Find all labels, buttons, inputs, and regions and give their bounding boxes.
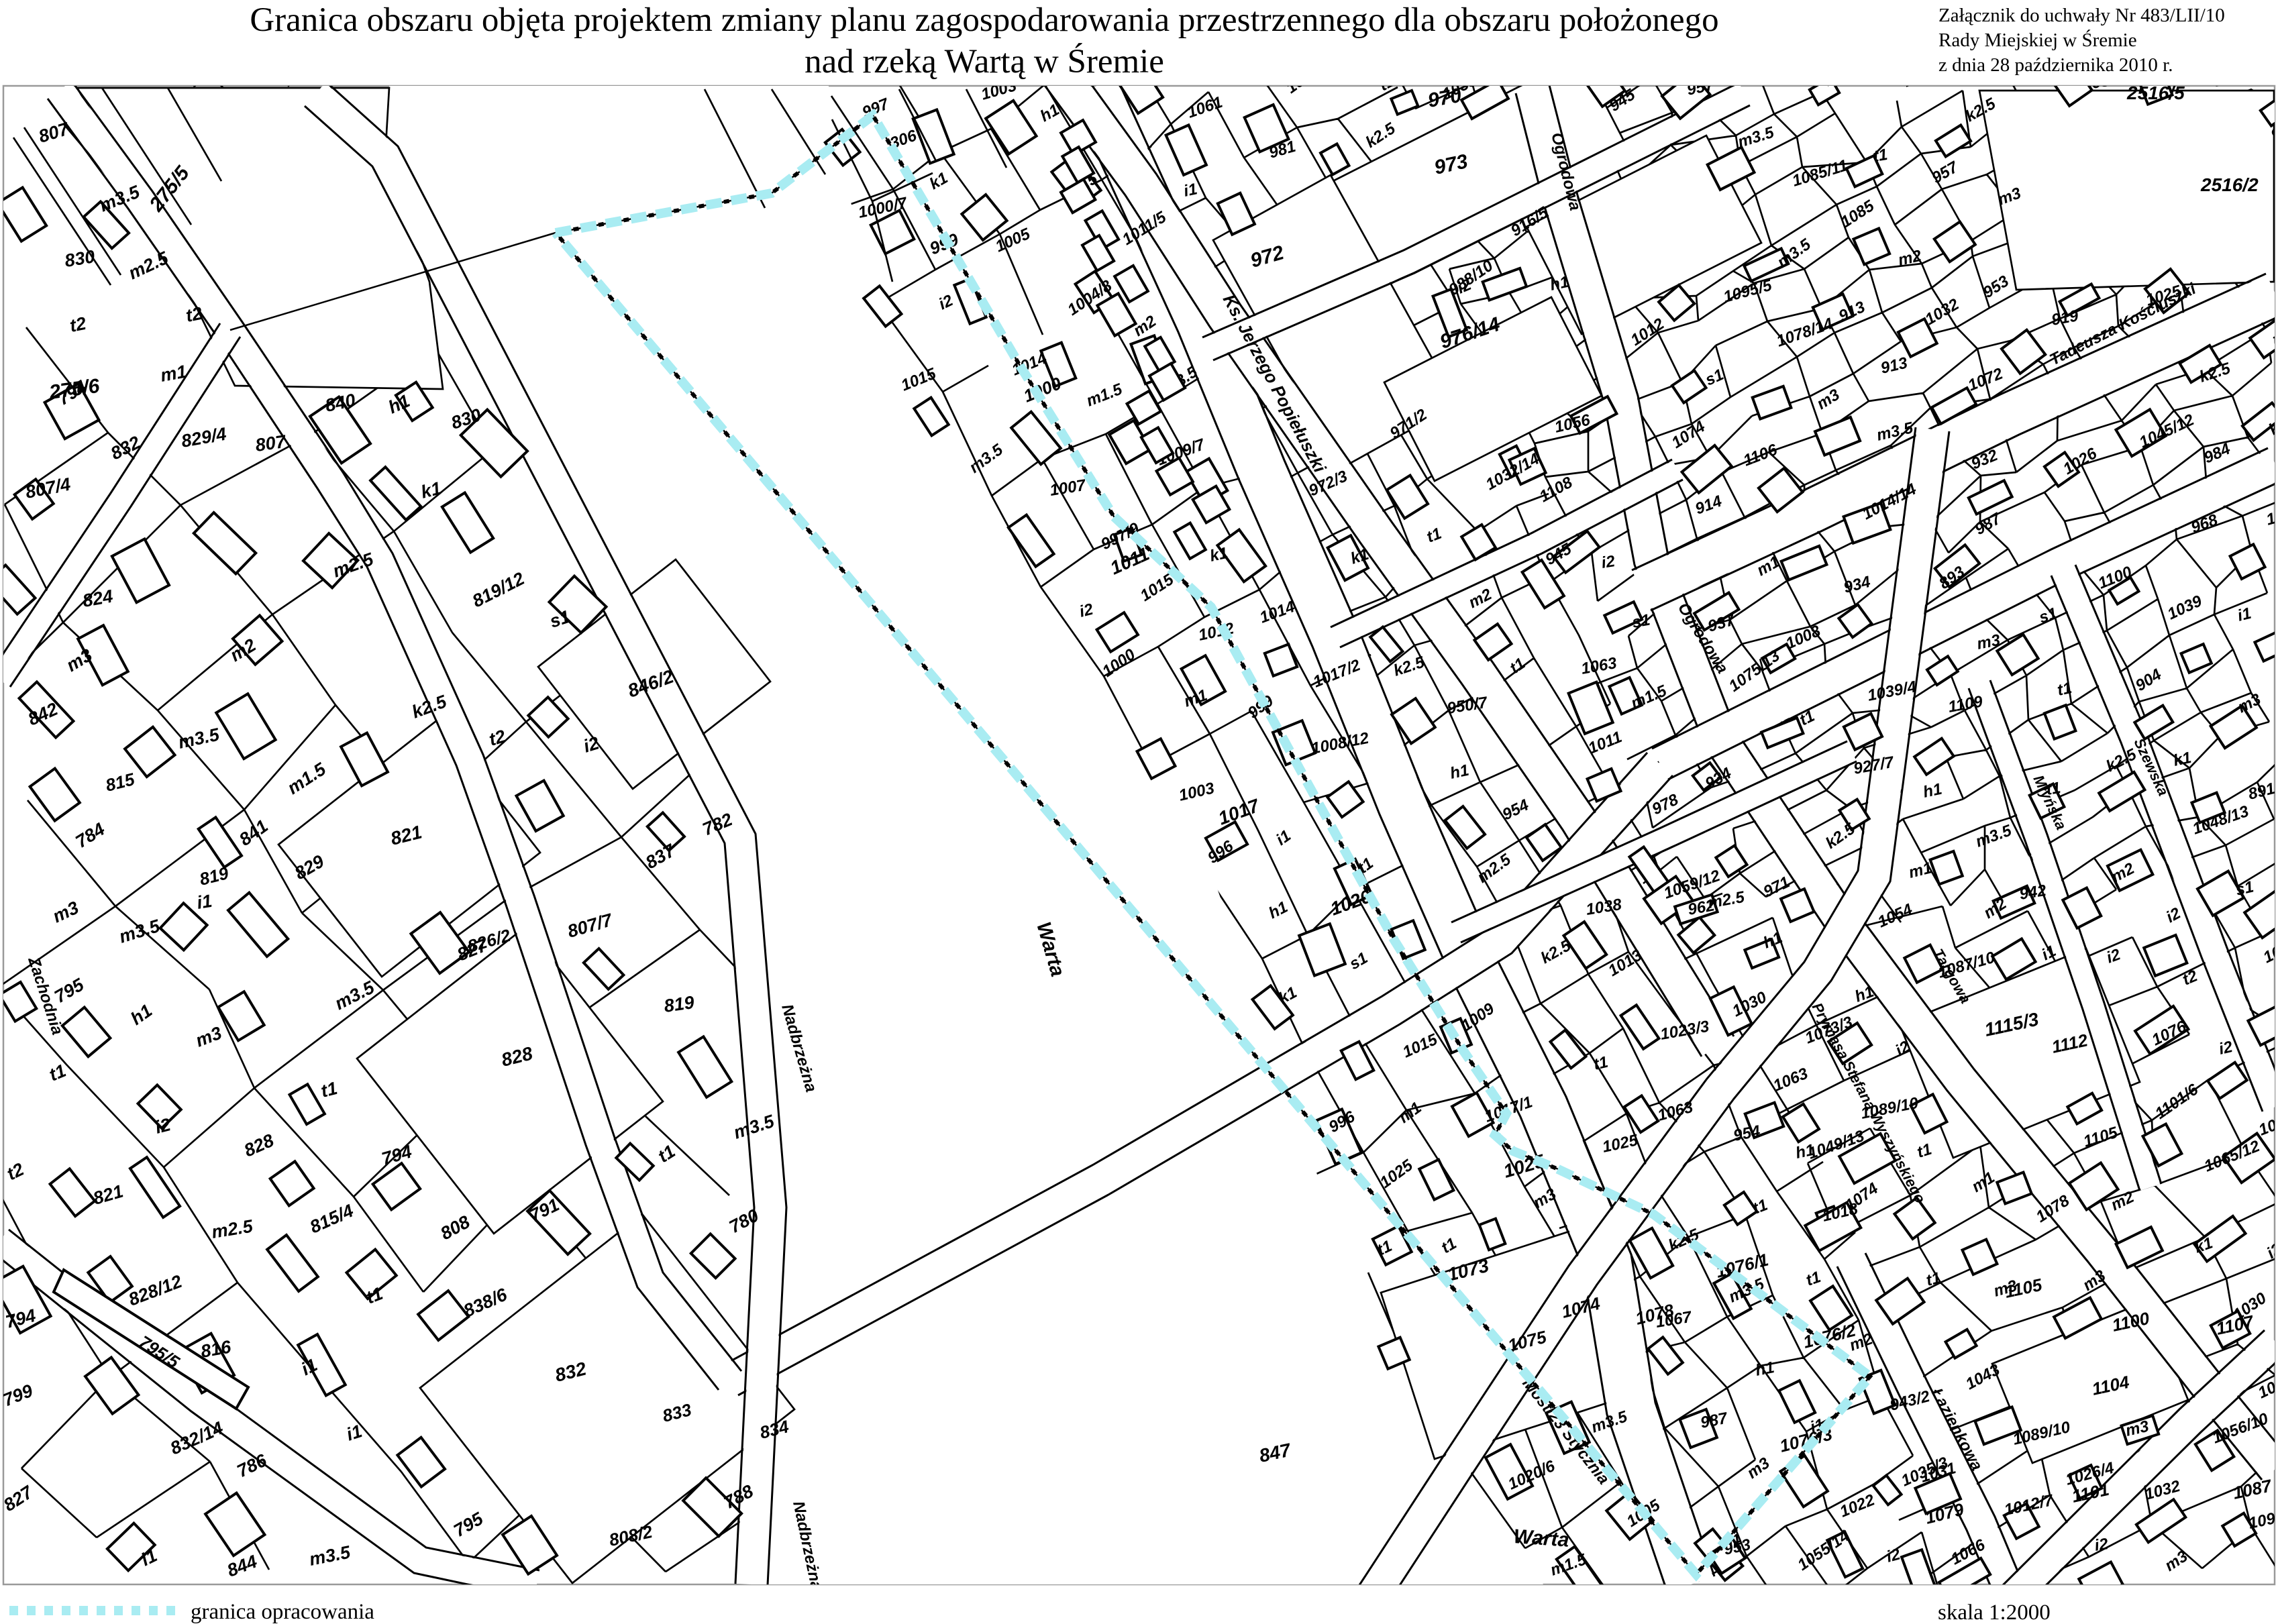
svg-text:nad rzeką Wartą w Śremie: nad rzeką Wartą w Śremie: [805, 43, 1164, 80]
svg-text:s1: s1: [1630, 611, 1651, 632]
svg-text:h1: h1: [1449, 761, 1471, 783]
svg-text:k1: k1: [1208, 544, 1230, 565]
svg-text:h1: h1: [1754, 1358, 1776, 1380]
svg-text:819: 819: [663, 992, 696, 1016]
svg-text:Warta: Warta: [1513, 1525, 1570, 1552]
svg-text:Rady Miejskiej w Śremie: Rady Miejskiej w Śremie: [1938, 29, 2137, 51]
svg-text:h1: h1: [1922, 780, 1944, 802]
svg-text:skala 1:2000: skala 1:2000: [1938, 1601, 2051, 1624]
svg-text:h1: h1: [1549, 273, 1571, 294]
svg-text:k1: k1: [2172, 749, 2193, 770]
svg-text:Granica obszaru objęta projekt: Granica obszaru objęta projektem zmiany …: [250, 1, 1718, 39]
svg-text:t1: t1: [1872, 146, 1889, 166]
svg-text:Załącznik do uchwały Nr 483/LI: Załącznik do uchwały Nr 483/LII/10: [1938, 5, 2225, 26]
svg-text:z dnia 28 października 2010 r.: z dnia 28 października 2010 r.: [1938, 54, 2173, 76]
svg-text:2516/2: 2516/2: [2200, 174, 2259, 195]
svg-text:i1: i1: [195, 891, 213, 913]
svg-text:granica opracowania: granica opracowania: [191, 1600, 374, 1624]
